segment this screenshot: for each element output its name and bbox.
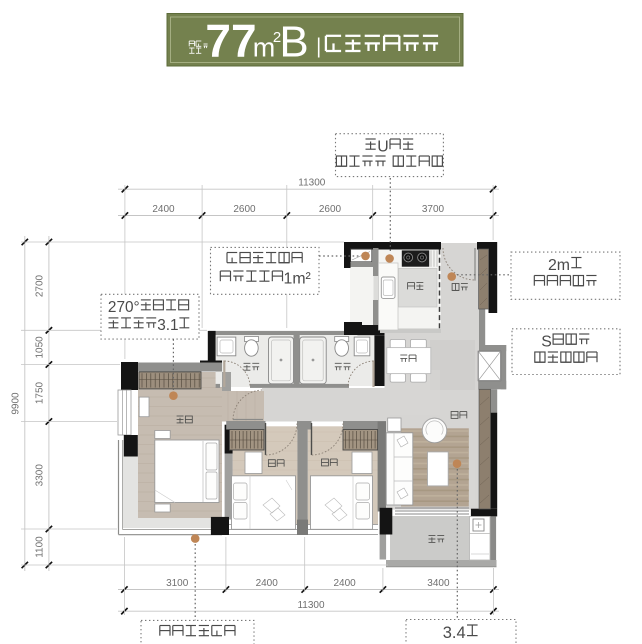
svg-text:2400: 2400	[333, 578, 356, 589]
svg-text:2400: 2400	[152, 204, 175, 215]
svg-text:3400: 3400	[427, 578, 450, 589]
svg-text:77: 77	[205, 15, 256, 67]
svg-text:1750: 1750	[35, 381, 46, 404]
svg-text:3.1: 3.1	[157, 317, 178, 334]
svg-text:2600: 2600	[319, 204, 342, 215]
svg-text:3700: 3700	[422, 204, 445, 215]
svg-text:2400: 2400	[256, 578, 279, 589]
svg-text:B: B	[279, 18, 308, 67]
svg-text:3100: 3100	[166, 578, 189, 589]
svg-text:11300: 11300	[298, 178, 326, 189]
svg-text:1100: 1100	[35, 536, 46, 558]
svg-text:U: U	[377, 139, 388, 156]
svg-text:2m: 2m	[548, 257, 570, 274]
svg-text:S: S	[541, 334, 552, 351]
svg-text:3300: 3300	[35, 464, 46, 487]
svg-text:2600: 2600	[233, 204, 256, 215]
svg-text:9900: 9900	[11, 392, 22, 415]
svg-text:3.4: 3.4	[443, 624, 466, 642]
svg-text:1m²: 1m²	[284, 271, 311, 288]
svg-text:1050: 1050	[35, 336, 46, 359]
svg-text:2700: 2700	[35, 274, 46, 297]
svg-text:270°: 270°	[108, 299, 140, 316]
svg-text:11300: 11300	[297, 600, 325, 611]
